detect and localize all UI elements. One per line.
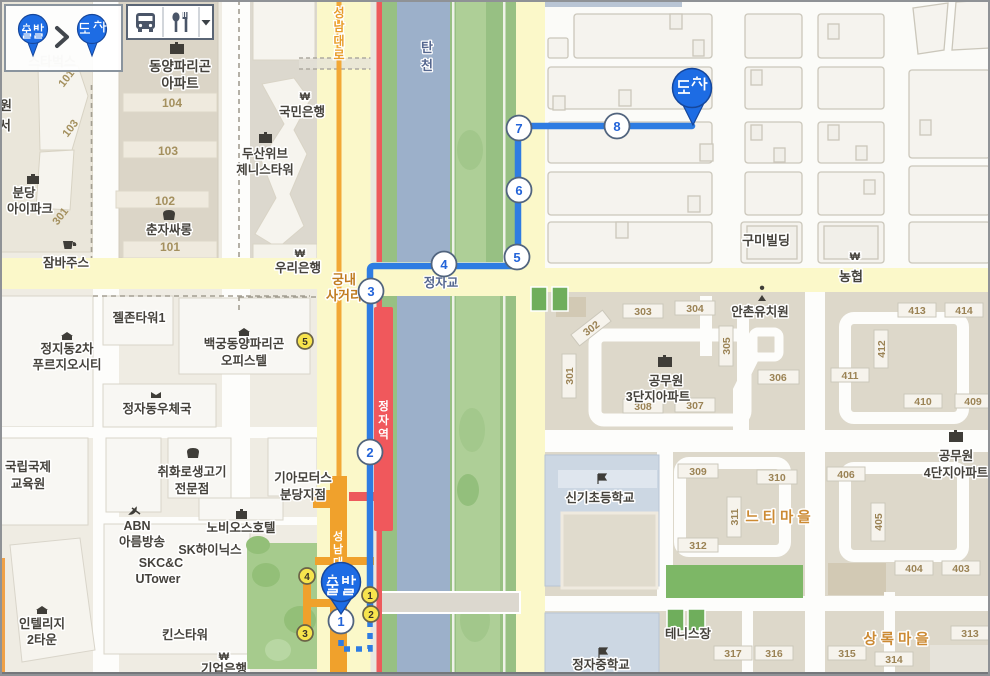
svg-text:안촌유치원: 안촌유치원 [731,304,789,319]
svg-text:테니스장: 테니스장 [665,626,712,641]
svg-text:기아모터스: 기아모터스 [274,470,332,485]
svg-text:₩: ₩ [300,91,311,103]
svg-text:403: 403 [952,563,970,575]
svg-text:느티마을: 느티마을 [745,509,814,526]
svg-text:103: 103 [158,144,178,158]
svg-text:오피스텔: 오피스텔 [221,353,267,368]
svg-text:아름방송: 아름방송 [119,534,166,549]
svg-text:공무원: 공무원 [649,374,684,388]
svg-text:역: 역 [378,427,389,441]
svg-text:구미빌딩: 구미빌딩 [742,233,790,248]
svg-text:301: 301 [564,367,576,385]
svg-text:취화로생고기: 취화로생고기 [157,464,226,479]
svg-text:푸르지오시티: 푸르지오시티 [32,357,101,372]
svg-text:314: 314 [885,654,903,666]
svg-text:1: 1 [367,591,373,602]
svg-text:아파트: 아파트 [161,75,199,91]
svg-text:406: 406 [837,469,855,481]
svg-text:SKC&C: SKC&C [139,556,183,570]
svg-text:102: 102 [155,194,175,208]
svg-text:상록마을: 상록마을 [863,631,932,648]
svg-text:303: 303 [634,306,652,318]
svg-text:306: 306 [769,372,787,384]
svg-text:궁내: 궁내 [332,272,356,287]
svg-text:5: 5 [513,250,520,265]
svg-text:5: 5 [302,337,308,348]
svg-text:413: 413 [908,305,926,317]
svg-text:분당: 분당 [12,185,36,200]
svg-text:4: 4 [440,257,448,272]
svg-text:3단지아파트: 3단지아파트 [626,389,691,404]
svg-text:아이파크: 아이파크 [7,201,54,216]
svg-text:대: 대 [333,34,344,48]
svg-text:국민은행: 국민은행 [279,104,325,119]
svg-text:성: 성 [333,6,344,20]
svg-text:정지동2차: 정지동2차 [41,341,94,356]
svg-text:성: 성 [333,529,343,543]
svg-text:젤존타워1: 젤존타워1 [113,310,166,325]
svg-text:춘자싸롱: 춘자싸롱 [146,222,193,237]
svg-text:₩: ₩ [850,251,861,263]
svg-text:정자동우체국: 정자동우체국 [122,401,192,416]
svg-text:남: 남 [333,543,343,556]
svg-text:우리은행: 우리은행 [275,260,321,275]
svg-text:UTower: UTower [136,572,181,586]
svg-text:3: 3 [302,629,308,640]
svg-text:409: 409 [964,396,982,408]
svg-text:공무원: 공무원 [939,449,974,463]
svg-text:킨스타워: 킨스타워 [162,627,208,642]
svg-text:414: 414 [955,305,973,317]
svg-text:잠바주스: 잠바주스 [43,255,90,270]
svg-text:310: 310 [768,472,786,484]
svg-text:305: 305 [721,337,733,355]
svg-text:ABN: ABN [123,519,150,533]
svg-text:410: 410 [914,396,932,408]
svg-text:1: 1 [337,614,344,629]
svg-text:정: 정 [378,399,389,413]
svg-text:3: 3 [367,284,374,299]
svg-text:로: 로 [333,48,344,62]
svg-text:국립국제: 국립국제 [5,460,51,474]
svg-text:백궁동양파리곤: 백궁동양파리곤 [204,336,285,351]
svg-text:304: 304 [686,303,704,315]
svg-text:₩: ₩ [219,651,230,663]
svg-text:405: 405 [873,513,885,531]
svg-text:노비오스호텔: 노비오스호텔 [206,520,275,535]
svg-text:탄: 탄 [421,40,433,55]
svg-text:정자중학교: 정자중학교 [572,657,630,672]
svg-text:제니스타워: 제니스타워 [236,162,294,177]
svg-text:인텔리지: 인텔리지 [19,616,65,631]
svg-text:315: 315 [838,648,856,660]
svg-text:신기초등학교: 신기초등학교 [565,490,635,505]
svg-text:7: 7 [515,121,522,136]
svg-text:311: 311 [729,508,741,525]
svg-text:312: 312 [689,540,707,552]
svg-text:6: 6 [515,183,522,198]
svg-text:309: 309 [689,466,707,478]
svg-text:313: 313 [961,628,979,640]
svg-text:SK하이닉스: SK하이닉스 [178,542,242,557]
svg-text:4: 4 [304,572,310,583]
svg-text:2타운: 2타운 [27,632,57,647]
svg-text:동양파리곤: 동양파리곤 [149,59,211,74]
svg-text:101: 101 [160,240,180,254]
svg-text:교육원: 교육원 [11,476,46,491]
svg-text:사거리: 사거리 [326,288,362,303]
svg-text:남: 남 [333,19,344,34]
svg-text:404: 404 [905,563,923,575]
svg-text:자: 자 [378,413,389,427]
svg-text:두산위브: 두산위브 [242,146,289,161]
svg-text:2: 2 [368,610,374,621]
svg-text:정자교: 정자교 [424,275,459,290]
svg-text:전문점: 전문점 [175,481,210,496]
svg-text:천: 천 [421,58,433,73]
svg-text:317: 317 [724,648,742,660]
svg-text:농협: 농협 [839,269,863,284]
svg-text:분당지점: 분당지점 [280,487,326,502]
svg-text:104: 104 [162,96,182,110]
svg-text:411: 411 [842,370,859,382]
svg-text:316: 316 [765,648,783,660]
svg-text:412: 412 [876,340,888,358]
svg-text:4단지아파트: 4단지아파트 [924,465,989,480]
svg-text:8: 8 [613,119,620,134]
svg-text:2: 2 [366,445,373,460]
svg-text:₩: ₩ [295,248,306,260]
